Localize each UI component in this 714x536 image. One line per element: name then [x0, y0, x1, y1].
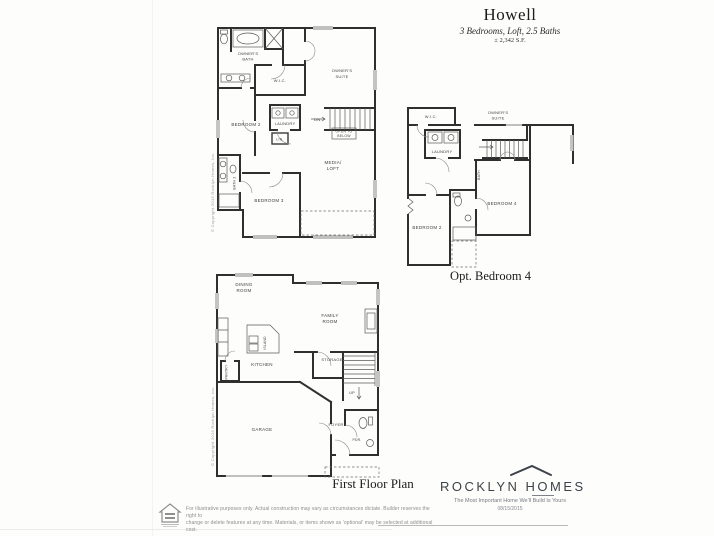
- plan-subtitle: 3 Bedrooms, Loft, 2.5 Baths: [420, 26, 600, 36]
- room-label-owners-suite: OWNER'S: [332, 68, 353, 73]
- door-arcs: [240, 41, 315, 193]
- opt-bedroom4-walls: [475, 160, 530, 235]
- plan-sqft: ± 2,342 S.F.: [420, 37, 600, 44]
- ff-stair-treads: [343, 352, 375, 399]
- opt-bath-walls: [450, 190, 476, 265]
- first-floor-caption: First Floor Plan: [308, 476, 438, 492]
- room-label-bedroom3: BEDROOM 3: [254, 198, 284, 203]
- room-label-owners-suite-2: SUITE: [335, 74, 348, 79]
- second-floor-plan-drawing: OWNER'S BATH W.I.C. OWNER'S SUITE BEDROO…: [213, 25, 378, 250]
- opt-room-label-bath: BATH: [477, 170, 481, 180]
- footer-rule: [378, 525, 568, 526]
- opt-room-label-owners-suite: OWNER'S: [488, 110, 509, 115]
- owners-bath-walls: [231, 28, 283, 65]
- equal-housing-icon: [158, 502, 182, 528]
- ff-label-foyer: FOYER: [328, 422, 343, 427]
- opt-room-label-bedroom2: BEDROOM 2: [412, 225, 442, 230]
- ff-label-storage: STORAGE: [321, 357, 342, 362]
- room-label-wic: W.I.C.: [274, 78, 286, 83]
- plan-title: Howell: [420, 5, 600, 25]
- ff-garage-walls: [217, 382, 331, 476]
- builder-name: ROCKLYN HOMES: [440, 479, 580, 494]
- room-label-open-below-2: BELOW: [337, 134, 351, 138]
- room-label-bedroom2: BEDROOM 2: [231, 122, 261, 127]
- room-label-media-loft-2: LOFT: [327, 166, 340, 171]
- room-label-dn: DN.: [314, 117, 322, 122]
- opt-bedroom4-outer: [476, 125, 530, 235]
- ff-label-garage: GARAGE: [252, 427, 273, 432]
- ff-label-pdr: PDR.: [352, 438, 361, 442]
- footer-disclaimer: For illustrative purposes only. Actual c…: [186, 506, 436, 534]
- opt-stair-treads: [487, 140, 523, 158]
- opt-room-label-laundry: LAUNDRY: [432, 149, 453, 154]
- ff-label-dining: DINING: [235, 282, 252, 287]
- opt-room-label-bedroom4: BEDROOM 4: [487, 201, 517, 206]
- ff-label-island: ISLAND: [263, 336, 267, 350]
- ff-outer-walls: [217, 275, 378, 476]
- ff-label-up: UP: [349, 390, 355, 395]
- laundry-walls: [270, 105, 300, 130]
- open-area-dashed: [301, 211, 374, 235]
- title-block: Howell 3 Bedrooms, Loft, 2.5 Baths ± 2,3…: [420, 5, 600, 44]
- bedroom2-bath2-walls: [218, 95, 255, 210]
- opt-room-label-owners-suite-2: SUITE: [491, 116, 504, 121]
- bedroom3-walls: [243, 173, 300, 237]
- ff-label-kitchen: KITCHEN: [251, 362, 273, 367]
- room-label-media-loft: MEDIA/: [324, 160, 342, 165]
- opt-bedroom4-plan-drawing: W.I.C. OWNER'S SUITE LAUNDRY BATH BEDROO…: [405, 103, 580, 271]
- room-label-bath2: BATH 2: [233, 176, 237, 189]
- disclaimer-line-1: For illustrative purposes only. Actual c…: [186, 506, 436, 520]
- first-floor-plan-drawing: DINING ROOM FAMILY ROOM KITCHEN ISLAND P…: [213, 273, 393, 481]
- ff-label-family: FAMILY: [321, 313, 338, 318]
- builder-logo-block: ROCKLYN HOMES The Most Important Home We…: [440, 464, 580, 512]
- plan-date: 08/15/2015: [440, 506, 580, 512]
- ff-label-pantry: PANTRY: [225, 364, 229, 379]
- ff-fireplace: [365, 309, 377, 333]
- builder-tagline: The Most Important Home We'll Build Is Y…: [440, 498, 580, 504]
- room-label-owners-bath: OWNER'S: [238, 51, 259, 56]
- floorplan-sheet: Howell 3 Bedrooms, Loft, 2.5 Baths ± 2,3…: [0, 0, 714, 536]
- opt-left-window-zigzag: [408, 198, 413, 214]
- stair-walls: [325, 108, 373, 130]
- opt-room-label-wic: W.I.C.: [425, 114, 437, 119]
- scan-artifact-vertical: [152, 0, 153, 536]
- brand-underline: [532, 495, 554, 496]
- opt-bedroom4-caption: Opt. Bedroom 4: [428, 269, 553, 284]
- disclaimer-line-2: change or delete features at any time. M…: [186, 520, 436, 534]
- ff-label-family-2: ROOM: [323, 319, 338, 324]
- copyright-vertical-second-floor: © Copyright 2015 Rocklyn Homes, Inc.: [210, 152, 215, 232]
- ff-kitchen-fixtures: [218, 318, 279, 356]
- opt-dashed-extension: [452, 241, 476, 267]
- stair-treads: [330, 108, 370, 130]
- ff-label-dining-2: ROOM: [237, 288, 252, 293]
- copyright-vertical-first-floor: © Copyright 2015 Rocklyn Homes, Inc.: [210, 386, 215, 466]
- room-label-lin: LIN.: [276, 138, 283, 142]
- laundry-fixtures: [272, 108, 298, 118]
- ff-door-arcs: [225, 351, 357, 455]
- ff-pdr-fixtures: [359, 417, 374, 447]
- room-label-owners-bath-2: BATH: [242, 57, 253, 62]
- rocklyn-roof-icon: [508, 464, 554, 477]
- room-label-laundry: LAUNDRY: [275, 121, 296, 126]
